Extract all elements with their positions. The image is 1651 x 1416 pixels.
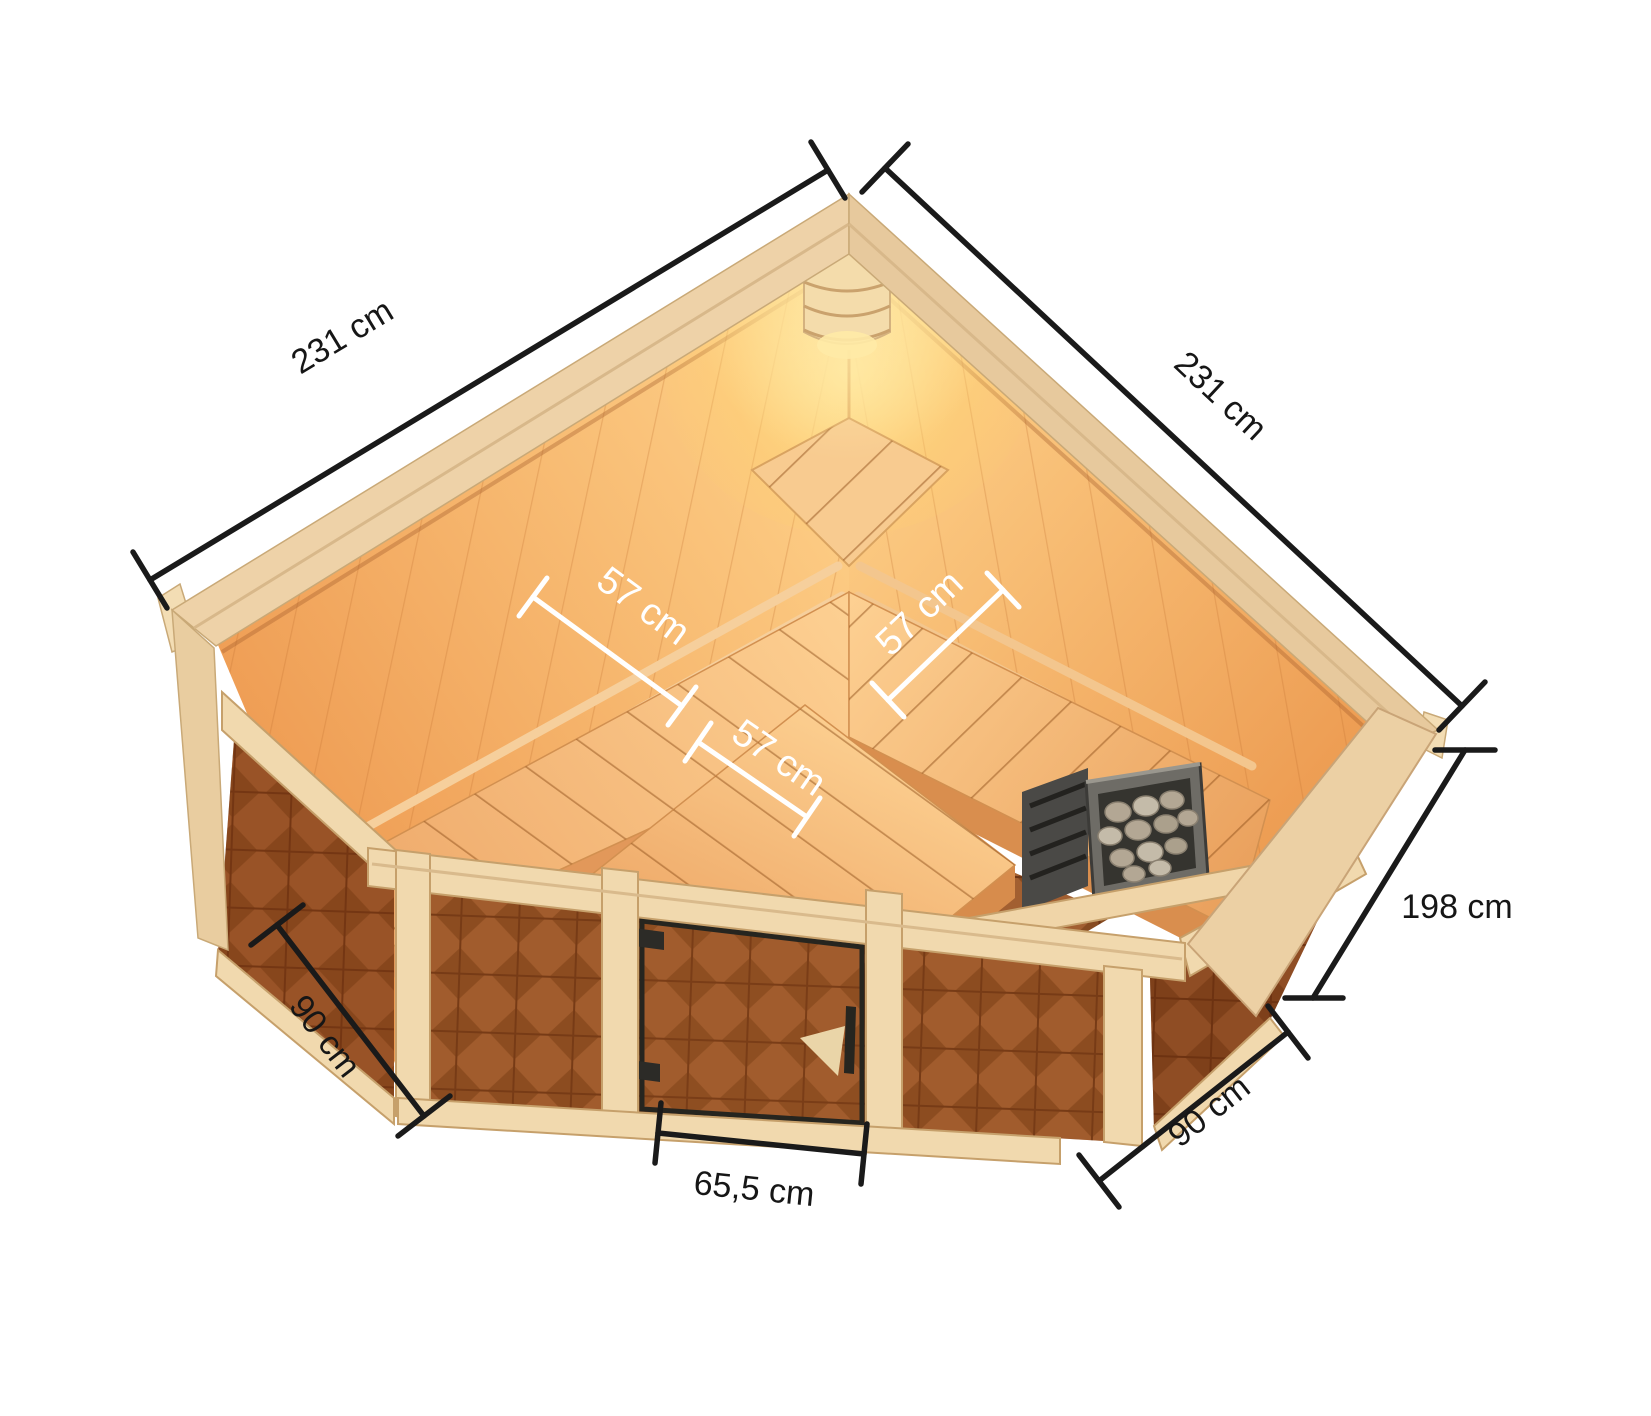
dim-wall-right-label: 231 cm [1167,344,1274,448]
post-right-corner [1104,966,1142,1146]
sauna-dimension-diagram: 231 cm 231 cm 198 cm 90 cm 90 cm 65,5 cm [0,0,1651,1416]
window-left [430,893,602,1110]
left-corner-face [172,610,228,950]
post-left-corner [396,850,430,1122]
window-right [902,948,1104,1141]
dim-door-width-label: 65,5 cm [692,1164,816,1214]
glass-door [630,917,866,1127]
post-door-right [866,890,902,1146]
post-door-left [602,868,638,1130]
dim-wall-left-label: 231 cm [285,291,400,381]
door-handle [844,1006,856,1074]
dim-height-label: 198 cm [1401,888,1513,926]
diagram-canvas: 231 cm 231 cm 198 cm 90 cm 90 cm 65,5 cm [0,0,1651,1416]
lamp-light [817,331,877,359]
